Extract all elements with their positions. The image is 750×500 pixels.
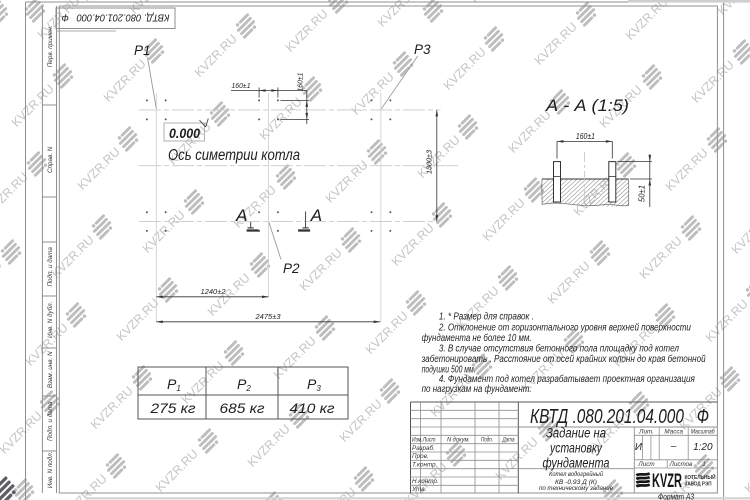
svg-text:Пров.: Пров.	[412, 453, 429, 460]
svg-text:И: И	[635, 442, 643, 453]
svg-text:4. Фундамент под котел разраб: 4. Фундамент под котел разрабатывает про…	[439, 373, 696, 385]
svg-text:–: –	[670, 441, 677, 452]
svg-text:Разраб.: Разраб.	[412, 444, 435, 452]
svg-text:по техническому задание: по техническому задание	[539, 484, 613, 492]
svg-text:160±1: 160±1	[296, 73, 305, 92]
svg-text:забетонировать . Расстояние о: забетонировать . Расстояние от осей край…	[421, 353, 706, 365]
svg-text:N докум.: N докум.	[447, 435, 470, 443]
svg-text:Р3: Р3	[414, 42, 431, 57]
svg-text:Подп.: Подп.	[481, 435, 493, 443]
svg-text:А - А (1:5): А - А (1:5)	[545, 97, 629, 115]
svg-text:Инв. N дубл.: Инв. N дубл.	[46, 302, 54, 338]
svg-text:А: А	[310, 206, 322, 225]
svg-text:Задание на: Задание на	[546, 425, 606, 440]
svg-text:1: 1	[702, 461, 706, 468]
svg-text:Изм.Лист: Изм.Лист	[412, 436, 436, 443]
svg-text:Листов: Листов	[669, 461, 694, 468]
svg-text:Взам. инв. N: Взам. инв. N	[47, 351, 54, 388]
svg-text:Масштаб: Масштаб	[691, 428, 715, 436]
svg-text:фундамента: фундамента	[543, 456, 610, 471]
svg-text:1300±3: 1300±3	[425, 149, 434, 174]
svg-text:1. * Размер для справок .: 1. * Размер для справок .	[439, 311, 534, 322]
svg-text:Перв. примен.: Перв. примен.	[47, 25, 54, 67]
svg-text:Инв. N подл.: Инв. N подл.	[46, 451, 54, 488]
svg-text:Формат А3: Формат А3	[658, 493, 695, 500]
svg-text:по нагрузкам на фундамент.: по нагрузкам на фундамент.	[422, 383, 532, 395]
svg-text:Н.контр.: Н.контр.	[412, 478, 439, 485]
svg-text:Р2: Р2	[283, 261, 300, 276]
svg-text:Дата: Дата	[502, 436, 515, 443]
svg-text:0.000: 0.000	[169, 126, 200, 141]
svg-text:50±1: 50±1	[638, 185, 647, 202]
svg-text:ЗАВОД РЭП: ЗАВОД РЭП	[685, 482, 712, 488]
svg-text:160±1: 160±1	[576, 132, 595, 141]
svg-text:КВТД. 080.201.04.000 Ф: КВТД. 080.201.04.000 Ф	[62, 11, 170, 23]
svg-text:Подп. и дата: Подп. и дата	[46, 401, 54, 441]
svg-text:Ось симетрии котла: Ось симетрии котла	[168, 147, 300, 164]
svg-text:КОТЕЛЬНЫЙ: КОТЕЛЬНЫЙ	[685, 473, 716, 481]
svg-text:KVZR: KVZR	[652, 470, 682, 492]
svg-text:Справ. N: Справ. N	[47, 146, 54, 173]
svg-text:1:20: 1:20	[693, 442, 713, 453]
svg-text:410 кг: 410 кг	[290, 400, 335, 416]
svg-text:Р1: Р1	[134, 43, 151, 58]
svg-text:685 кг: 685 кг	[220, 400, 265, 416]
svg-text:Котел водогрейный: Котел водогрейный	[549, 470, 603, 478]
svg-text:фундамента не более 10 мм.: фундамента не более 10 мм.	[422, 332, 532, 344]
svg-text:Т.контр.: Т.контр.	[412, 461, 437, 468]
svg-text:160±1: 160±1	[232, 81, 251, 90]
svg-text:275 кг: 275 кг	[149, 400, 195, 416]
svg-text:1240±2: 1240±2	[201, 287, 227, 296]
svg-text:3. В случае отсутствия бетонн: 3. В случае отсутствия бетонного пола пл…	[439, 342, 679, 354]
svg-text:Лит.: Лит.	[638, 429, 654, 436]
svg-text:Утв.: Утв.	[411, 486, 426, 493]
svg-text:Подп. и дата: Подп. и дата	[46, 247, 54, 287]
svg-text:Лист: Лист	[637, 461, 654, 468]
svg-text:2475±3: 2475±3	[255, 312, 282, 321]
svg-text:установку: установку	[549, 441, 603, 456]
svg-text:А: А	[235, 206, 247, 225]
svg-text:Масса: Масса	[664, 429, 683, 436]
